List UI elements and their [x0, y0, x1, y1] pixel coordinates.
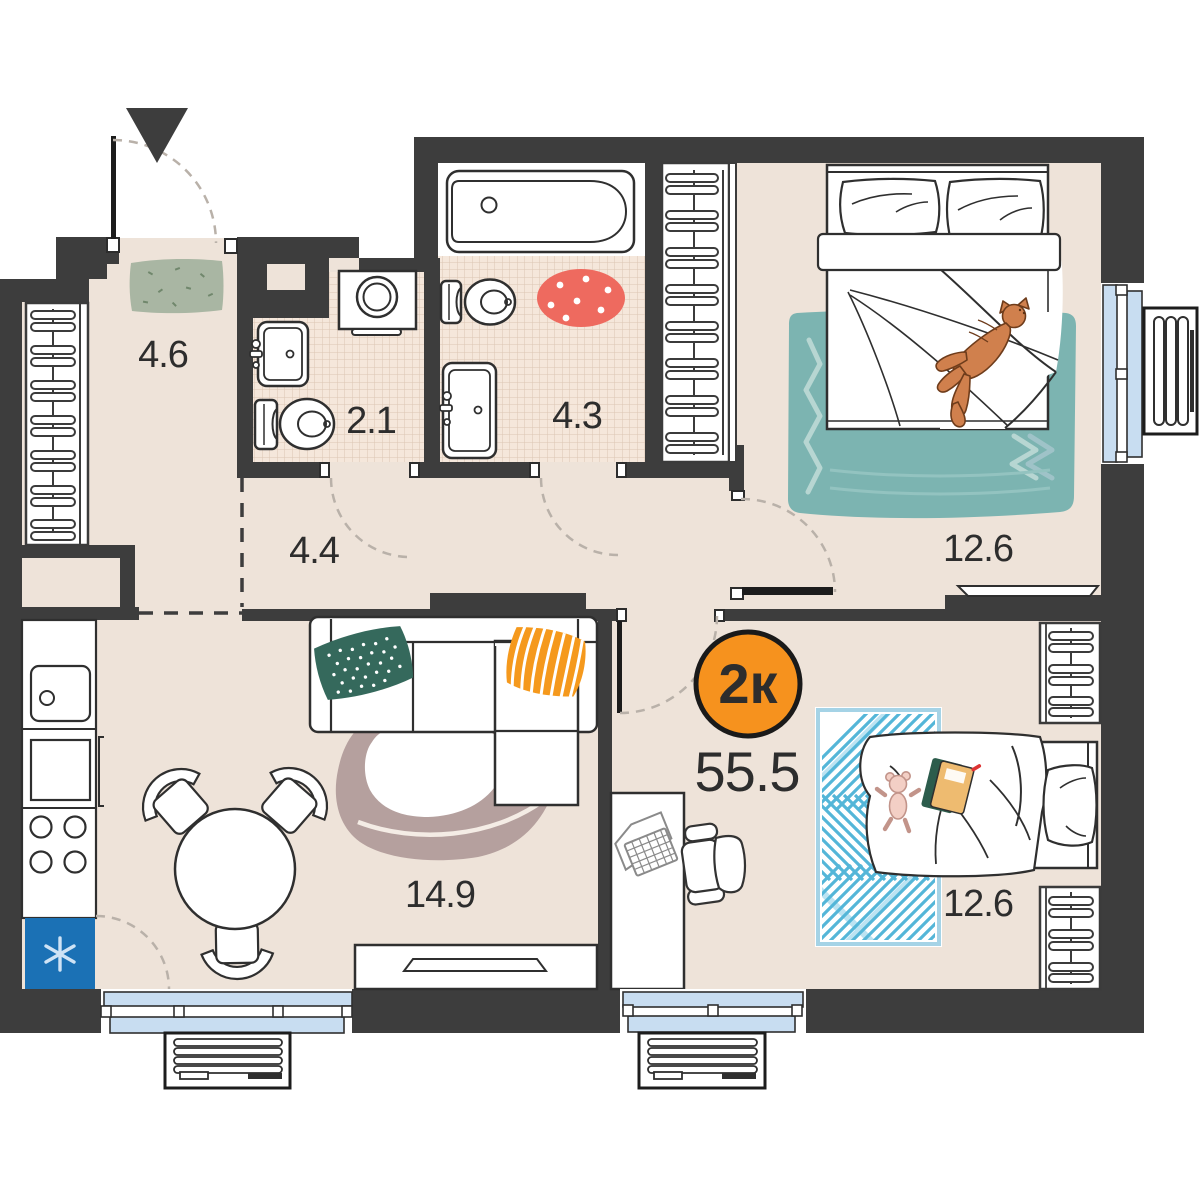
- svg-text:14.9: 14.9: [405, 874, 475, 916]
- svg-text:12.6: 12.6: [943, 528, 1013, 570]
- svg-text:4.6: 4.6: [138, 334, 188, 376]
- svg-text:2к: 2к: [718, 652, 778, 715]
- svg-text:2.1: 2.1: [346, 400, 396, 442]
- svg-text:4.3: 4.3: [552, 395, 602, 437]
- svg-text:55.5: 55.5: [695, 740, 800, 803]
- svg-text:12.6: 12.6: [943, 883, 1013, 925]
- svg-text:4.4: 4.4: [289, 530, 340, 572]
